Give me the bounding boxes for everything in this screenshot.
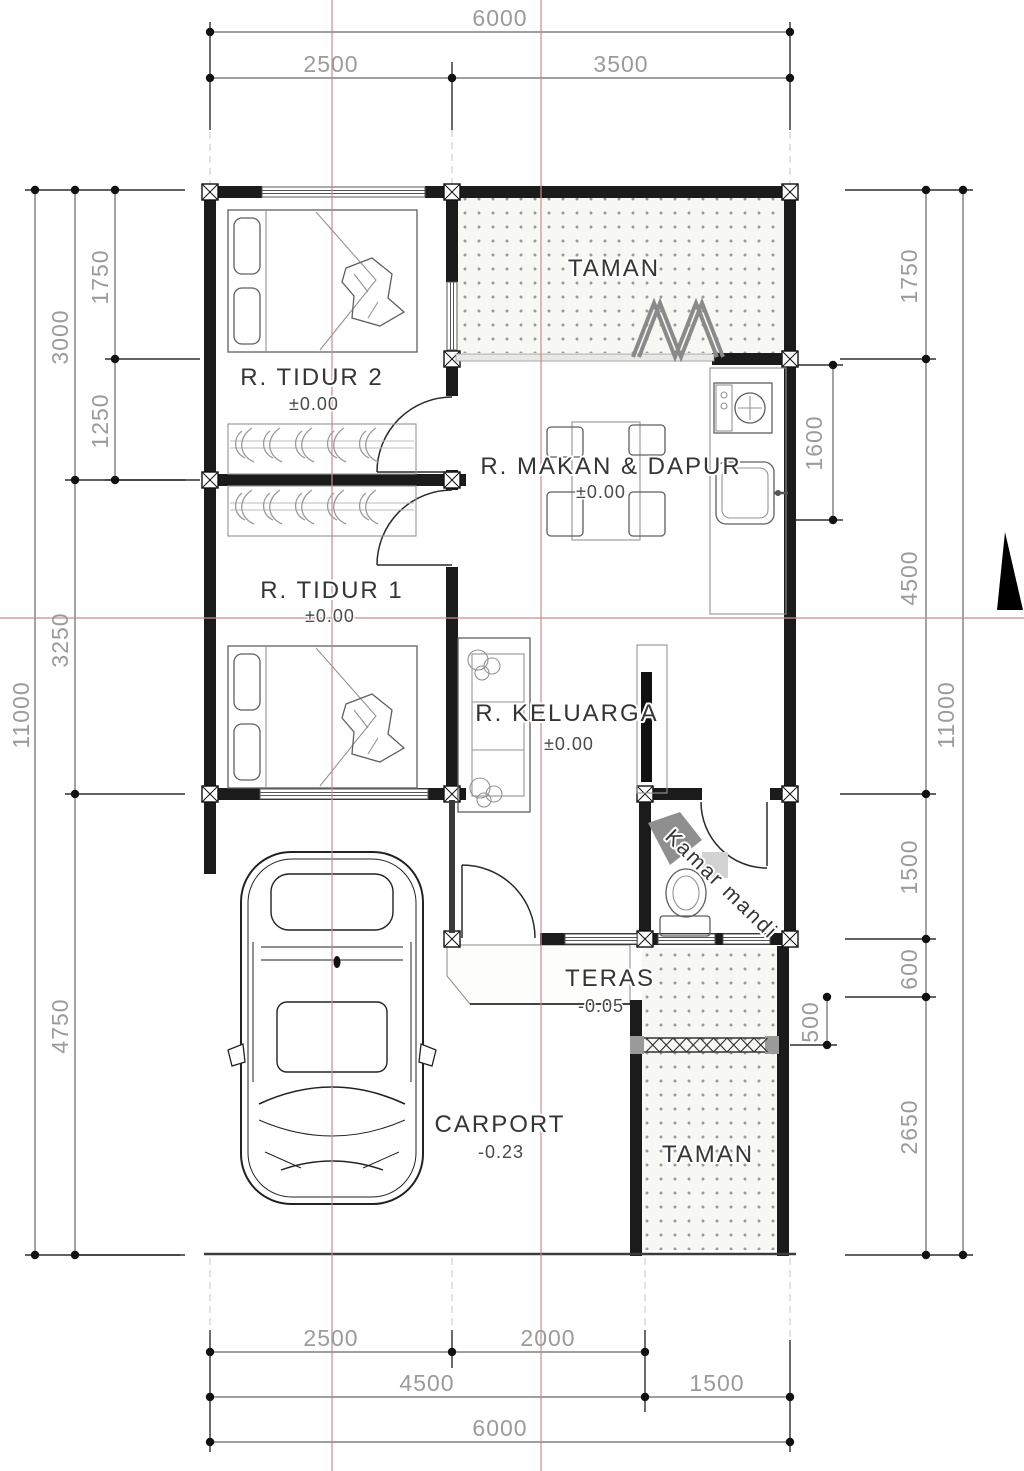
column-marker bbox=[782, 931, 798, 947]
label-teras: TERAS bbox=[565, 965, 655, 992]
dim-right-1500: 1500 bbox=[896, 839, 922, 894]
tv-icon bbox=[641, 672, 652, 782]
column-marker bbox=[202, 184, 218, 200]
dimension-dot bbox=[829, 516, 837, 524]
dimension-dot bbox=[786, 1438, 794, 1446]
column-marker bbox=[782, 184, 798, 200]
dim-right-2650: 2650 bbox=[896, 1099, 922, 1154]
dimension-dot bbox=[71, 186, 79, 194]
plant-icon bbox=[470, 778, 502, 807]
label-makan-dapur: R. MAKAN & DAPUR bbox=[480, 453, 741, 480]
label-keluarga: R. KELUARGA bbox=[475, 700, 658, 727]
dining-table-icon bbox=[572, 422, 640, 540]
dimension-dot bbox=[959, 186, 967, 194]
hanger-icon bbox=[264, 428, 282, 462]
dimension-dot bbox=[206, 28, 214, 36]
window-icon bbox=[262, 187, 425, 197]
car-mirror bbox=[228, 1044, 245, 1066]
dim-left-3000: 3000 bbox=[47, 309, 73, 364]
column-marker bbox=[637, 931, 653, 947]
door-arc bbox=[377, 397, 452, 472]
column-marker bbox=[637, 786, 653, 802]
dim-top-right: 3500 bbox=[593, 51, 648, 77]
dimension-dot bbox=[71, 790, 79, 798]
wall bbox=[204, 474, 466, 486]
dimension-dot bbox=[922, 993, 930, 1001]
dimension-dot bbox=[111, 355, 119, 363]
dim-left-3250: 3250 bbox=[47, 612, 73, 667]
dim-right-600: 600 bbox=[896, 948, 922, 989]
dim-left-4750: 4750 bbox=[47, 998, 73, 1053]
column-marker bbox=[202, 786, 218, 802]
dimension-dot bbox=[641, 1393, 649, 1401]
label-taman-top: TAMAN bbox=[568, 255, 660, 282]
dim-top-total: 6000 bbox=[472, 5, 527, 31]
bed-icon bbox=[228, 646, 417, 788]
dim-bottom-1500: 1500 bbox=[689, 1370, 744, 1396]
wall bbox=[639, 794, 651, 945]
dim-right-total: 11000 bbox=[933, 681, 959, 748]
door-arc bbox=[377, 490, 452, 565]
column-marker bbox=[444, 472, 460, 488]
wall bbox=[446, 567, 458, 800]
fence-post bbox=[630, 1036, 644, 1054]
hanger-icon bbox=[296, 428, 314, 462]
dimension-dot bbox=[111, 186, 119, 194]
level-tidur2: ±0.00 bbox=[289, 394, 339, 414]
level-carport: -0.23 bbox=[478, 1142, 524, 1162]
window-icon bbox=[565, 934, 637, 944]
dim-right-1600: 1600 bbox=[801, 415, 827, 470]
dim-bottom-total: 6000 bbox=[472, 1415, 527, 1441]
dimension-dot bbox=[31, 186, 39, 194]
wall bbox=[204, 186, 216, 874]
column-marker bbox=[202, 472, 218, 488]
hanger-icon bbox=[236, 490, 254, 524]
column-marker bbox=[782, 786, 798, 802]
window-icon bbox=[260, 789, 428, 799]
dim-bottom-2000: 2000 bbox=[520, 1325, 575, 1351]
dimension-dot bbox=[922, 355, 930, 363]
dimension-dot bbox=[786, 28, 794, 36]
dim-top-left: 2500 bbox=[303, 51, 358, 77]
dim-right-4500: 4500 bbox=[896, 550, 922, 605]
kitchen bbox=[710, 368, 788, 614]
chair-icon bbox=[629, 492, 665, 536]
bed-icon bbox=[228, 210, 417, 352]
dimension-dot bbox=[922, 935, 930, 943]
hanger-icon bbox=[328, 490, 346, 524]
hanger-icon bbox=[296, 490, 314, 524]
dimension-dot bbox=[959, 1251, 967, 1259]
level-teras: -0.05 bbox=[578, 996, 624, 1016]
floor-plan-page: 6000 2500 3500 11000 3000 3250 4750 1750… bbox=[0, 0, 1024, 1471]
dimension-dot bbox=[922, 790, 930, 798]
wall bbox=[777, 946, 789, 1256]
column-marker bbox=[444, 931, 460, 947]
label-tidur1: R. TIDUR 1 bbox=[260, 577, 404, 604]
dining-set bbox=[547, 422, 665, 540]
dimension-dot bbox=[206, 1438, 214, 1446]
dim-bottom-2500: 2500 bbox=[303, 1325, 358, 1351]
level-tidur1: ±0.00 bbox=[305, 606, 355, 626]
label-kamar-mandi: Kamar mandi bbox=[661, 825, 783, 944]
dimension-dot bbox=[786, 74, 794, 82]
dim-right-500: 500 bbox=[797, 1001, 823, 1042]
dimension-dot bbox=[71, 476, 79, 484]
thin-partition-wall bbox=[449, 800, 455, 933]
dimension-dot bbox=[641, 1348, 649, 1356]
section-arrow-marker bbox=[997, 532, 1023, 610]
window-icon bbox=[447, 282, 457, 350]
dimension-dot bbox=[922, 1251, 930, 1259]
column-marker bbox=[782, 351, 798, 367]
dimension-dot bbox=[206, 74, 214, 82]
floor-plan-drawing: 6000 2500 3500 11000 3000 3250 4750 1750… bbox=[0, 0, 1024, 1471]
dim-left-1250: 1250 bbox=[87, 393, 113, 448]
dimension-dot bbox=[922, 186, 930, 194]
dimension-dot bbox=[823, 993, 831, 1001]
hanger-icon bbox=[264, 490, 282, 524]
hanger-icon bbox=[328, 428, 346, 462]
dimension-dot bbox=[829, 361, 837, 369]
dim-bottom-4500: 4500 bbox=[399, 1370, 454, 1396]
dimension-dot bbox=[786, 1393, 794, 1401]
dimension-dot bbox=[111, 476, 119, 484]
level-keluarga: ±0.00 bbox=[544, 734, 594, 754]
hanger-icon bbox=[236, 428, 254, 462]
stove-icon bbox=[714, 383, 772, 433]
dimension-dot bbox=[823, 1041, 831, 1049]
level-makan-dapur: ±0.00 bbox=[576, 482, 626, 502]
dim-left-1750: 1750 bbox=[87, 249, 113, 304]
dimension-dot bbox=[31, 1251, 39, 1259]
door-arc bbox=[462, 865, 535, 938]
label-taman-bottom: TAMAN bbox=[662, 1141, 754, 1168]
dim-left-total: 11000 bbox=[8, 681, 34, 748]
hanger-icon bbox=[360, 490, 378, 524]
label-tidur2: R. TIDUR 2 bbox=[240, 364, 384, 391]
car-mirror bbox=[419, 1044, 436, 1066]
label-carport: CARPORT bbox=[435, 1111, 566, 1138]
dimension-dot bbox=[71, 1251, 79, 1259]
column-marker bbox=[444, 184, 460, 200]
hanger-icon bbox=[360, 428, 378, 462]
dimension-dot bbox=[206, 1348, 214, 1356]
dimension-dot bbox=[448, 74, 456, 82]
dim-right-1750: 1750 bbox=[896, 248, 922, 303]
dimension-dot bbox=[206, 1393, 214, 1401]
dimension-dot bbox=[448, 1348, 456, 1356]
wall bbox=[425, 186, 796, 198]
chair-icon bbox=[629, 425, 665, 455]
